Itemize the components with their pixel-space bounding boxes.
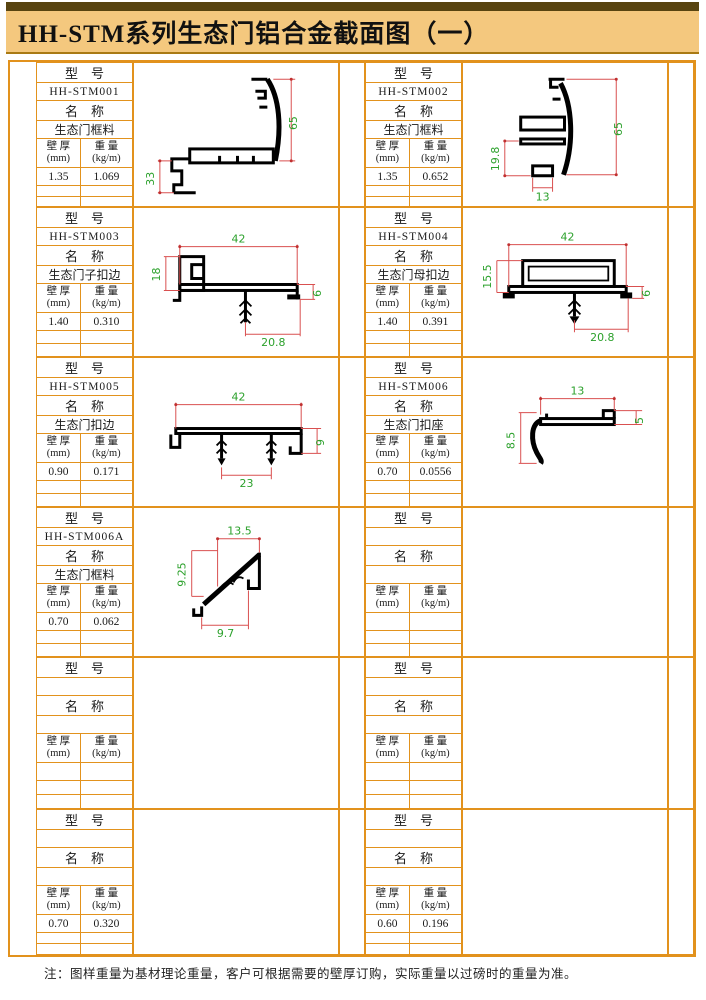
thickness-weight-header: 壁 厚(mm) 重 量(kg/m) bbox=[366, 284, 461, 313]
right-strip bbox=[668, 657, 694, 809]
spec-table-stm005: 型 号 HH-STM005 名 称 生态门扣边 壁 厚(mm) 重 量(kg/m… bbox=[36, 357, 133, 507]
thickness-weight-values: 1.40 0.391 bbox=[366, 313, 461, 331]
spec-table-bottom-left: 型 号 名 称 壁 厚(mm) 重 量(kg/m) 0.70 0.320 bbox=[36, 809, 133, 955]
spec-table-stm004: 型 号 HH-STM004 名 称 生态门母扣边 壁 厚(mm) 重 量(kg/… bbox=[365, 207, 462, 357]
right-strip bbox=[668, 207, 694, 357]
dim-label: 23 bbox=[239, 477, 253, 490]
thickness-value: 0.90 bbox=[37, 463, 80, 480]
spec-table-empty-2: 型 号 名 称 壁 厚(mm) 重 量(kg/m) bbox=[36, 657, 133, 809]
profile-drawing: 65 33 bbox=[134, 63, 338, 206]
thickness-weight-header: 壁 厚(mm) 重 量(kg/m) bbox=[366, 434, 461, 463]
model-value: HH-STM001 bbox=[37, 83, 132, 101]
empty-row bbox=[366, 781, 461, 795]
thickness-weight-header: 壁 厚(mm) 重 量(kg/m) bbox=[366, 584, 461, 613]
profile-shape bbox=[541, 419, 615, 425]
model-header: 型 号 bbox=[37, 810, 132, 830]
profile-diagram-stm004: 42 15.5 6 20.8 bbox=[462, 207, 668, 357]
title-bar: HH-STM系列生态门铝合金截面图（一） bbox=[6, 11, 699, 54]
empty-row bbox=[37, 481, 132, 494]
thickness-value bbox=[366, 763, 409, 780]
empty-row bbox=[366, 331, 461, 344]
weight-header: 重 量(kg/m) bbox=[409, 284, 461, 312]
thickness-header: 壁 厚(mm) bbox=[366, 734, 409, 762]
dim-label: 9.7 bbox=[217, 627, 234, 640]
weight-value: 0.320 bbox=[80, 915, 132, 932]
thickness-weight-values bbox=[37, 763, 132, 781]
weight-header: 重 量(kg/m) bbox=[409, 584, 461, 612]
thickness-value: 1.35 bbox=[366, 168, 409, 185]
left-margin-strip bbox=[10, 62, 36, 207]
thickness-weight-values: 0.90 0.171 bbox=[37, 463, 132, 481]
model-header: 型 号 bbox=[37, 208, 132, 228]
dim-label: 13 bbox=[570, 385, 584, 398]
dim-label: 6 bbox=[640, 290, 653, 297]
profile-diagram-stm001: 65 33 bbox=[133, 62, 339, 207]
name-header: 名 称 bbox=[366, 546, 461, 566]
footer-note: 注：图样重量为基材理论重量，客户可根据需要的壁厚订购，实际重量以过磅时的重量为准… bbox=[44, 963, 577, 982]
spec-table-stm006: 型 号 HH-STM006 名 称 生态门扣座 壁 厚(mm) 重 量(kg/m… bbox=[365, 357, 462, 507]
thickness-value: 0.70 bbox=[37, 613, 80, 630]
weight-value: 0.652 bbox=[409, 168, 461, 185]
model-header: 型 号 bbox=[37, 508, 132, 528]
empty-row bbox=[37, 344, 132, 356]
name-header: 名 称 bbox=[37, 101, 132, 121]
empty-row bbox=[366, 494, 461, 506]
thickness-weight-header: 壁 厚(mm) 重 量(kg/m) bbox=[366, 139, 461, 168]
empty-row bbox=[366, 944, 461, 954]
name-header: 名 称 bbox=[366, 246, 461, 266]
name-header: 名 称 bbox=[37, 396, 132, 416]
model-value bbox=[366, 678, 461, 696]
model-value: HH-STM003 bbox=[37, 228, 132, 246]
profile-diagram-stm005: 42 23 9 bbox=[133, 357, 339, 507]
thickness-header: 壁 厚(mm) bbox=[366, 284, 409, 312]
empty-row bbox=[366, 795, 461, 808]
weight-header: 重 量(kg/m) bbox=[80, 886, 132, 914]
profile-shape bbox=[204, 555, 260, 605]
profile-drawing: 42 15.5 6 20.8 bbox=[463, 208, 667, 356]
name-header: 名 称 bbox=[37, 246, 132, 266]
name-value bbox=[366, 716, 461, 734]
weight-header: 重 量(kg/m) bbox=[80, 584, 132, 612]
dim-label: 65 bbox=[287, 116, 300, 130]
right-strip bbox=[668, 357, 694, 507]
spec-table-bottom-right: 型 号 名 称 壁 厚(mm) 重 量(kg/m) 0.60 0.196 bbox=[365, 809, 462, 955]
dim-label: 42 bbox=[232, 233, 246, 246]
thickness-header: 壁 厚(mm) bbox=[366, 434, 409, 462]
thickness-weight-values: 1.35 1.069 bbox=[37, 168, 132, 186]
weight-value: 0.062 bbox=[80, 613, 132, 630]
weight-value: 1.069 bbox=[80, 168, 132, 185]
empty-row bbox=[37, 644, 132, 656]
thickness-weight-header: 壁 厚(mm) 重 量(kg/m) bbox=[37, 434, 132, 463]
dim-label: 13.5 bbox=[227, 525, 251, 538]
model-header: 型 号 bbox=[366, 658, 461, 678]
thickness-header: 壁 厚(mm) bbox=[366, 886, 409, 914]
thickness-weight-values: 0.70 0.062 bbox=[37, 613, 132, 631]
profile-diagram-empty bbox=[462, 507, 668, 657]
weight-header: 重 量(kg/m) bbox=[80, 139, 132, 167]
empty-row bbox=[37, 781, 132, 795]
dim-label: 42 bbox=[232, 391, 246, 404]
thickness-value bbox=[366, 613, 409, 630]
model-value: HH-STM005 bbox=[37, 378, 132, 396]
name-value: 生态门框料 bbox=[366, 121, 461, 139]
empty-row bbox=[37, 933, 132, 944]
empty-row bbox=[37, 331, 132, 344]
model-value bbox=[366, 830, 461, 848]
thickness-value: 0.70 bbox=[37, 915, 80, 932]
dim-label: 20.8 bbox=[261, 336, 285, 349]
empty-row bbox=[37, 494, 132, 506]
empty-row bbox=[366, 631, 461, 644]
middle-strip bbox=[339, 507, 365, 657]
name-header: 名 称 bbox=[366, 101, 461, 121]
model-header: 型 号 bbox=[37, 63, 132, 83]
thickness-value: 1.35 bbox=[37, 168, 80, 185]
model-value bbox=[366, 528, 461, 546]
empty-row bbox=[37, 944, 132, 954]
profile-diagram-empty bbox=[462, 657, 668, 809]
weight-value: 0.0556 bbox=[409, 463, 461, 480]
dim-label: 5 bbox=[633, 417, 646, 424]
model-header: 型 号 bbox=[37, 358, 132, 378]
thickness-weight-values: 0.70 0.0556 bbox=[366, 463, 461, 481]
spec-table-empty-1: 型 号 名 称 壁 厚(mm) 重 量(kg/m) bbox=[365, 507, 462, 657]
name-header: 名 称 bbox=[37, 546, 132, 566]
profile-diagram-stm002: 65 19.8 13 bbox=[462, 62, 668, 207]
model-value: HH-STM006 bbox=[366, 378, 461, 396]
thickness-value: 0.70 bbox=[366, 463, 409, 480]
thickness-weight-header: 壁 厚(mm) 重 量(kg/m) bbox=[366, 734, 461, 763]
name-value: 生态门扣座 bbox=[366, 416, 461, 434]
profile-drawing: 42 18 6 20.8 bbox=[134, 208, 338, 356]
middle-strip bbox=[339, 62, 365, 207]
left-margin-strip bbox=[10, 809, 36, 955]
name-header: 名 称 bbox=[366, 848, 461, 868]
model-header: 型 号 bbox=[366, 208, 461, 228]
thickness-header: 壁 厚(mm) bbox=[37, 434, 80, 462]
thickness-weight-values: 1.35 0.652 bbox=[366, 168, 461, 186]
dim-label: 9.25 bbox=[176, 562, 189, 586]
empty-row bbox=[37, 186, 132, 197]
dim-label: 6 bbox=[311, 290, 324, 297]
profile-diagram-stm006a: 13.5 9.25 9.7 bbox=[133, 507, 339, 657]
dim-label: 9 bbox=[314, 439, 327, 446]
model-header: 型 号 bbox=[366, 810, 461, 830]
thickness-weight-header: 壁 厚(mm) 重 量(kg/m) bbox=[366, 886, 461, 915]
right-strip bbox=[668, 507, 694, 657]
model-header: 型 号 bbox=[366, 358, 461, 378]
weight-header: 重 量(kg/m) bbox=[409, 886, 461, 914]
spec-table-stm003: 型 号 HH-STM003 名 称 生态门子扣边 壁 厚(mm) 重 量(kg/… bbox=[36, 207, 133, 357]
spec-table-stm006a: 型 号 HH-STM006A 名 称 生态门框料 壁 厚(mm) 重 量(kg/… bbox=[36, 507, 133, 657]
weight-value: 0.310 bbox=[80, 313, 132, 330]
weight-value: 0.171 bbox=[80, 463, 132, 480]
empty-row bbox=[366, 344, 461, 356]
dim-label: 20.8 bbox=[590, 331, 614, 344]
thickness-value bbox=[37, 763, 80, 780]
profile-drawing: 13.5 9.25 9.7 bbox=[134, 508, 338, 656]
dim-label: 33 bbox=[144, 172, 157, 186]
name-value bbox=[366, 566, 461, 584]
model-value: HH-STM002 bbox=[366, 83, 461, 101]
weight-header: 重 量(kg/m) bbox=[409, 734, 461, 762]
thickness-header: 壁 厚(mm) bbox=[37, 284, 80, 312]
thickness-weight-values: 0.70 0.320 bbox=[37, 915, 132, 933]
spec-table-stm002: 型 号 HH-STM002 名 称 生态门框料 壁 厚(mm) 重 量(kg/m… bbox=[365, 62, 462, 207]
name-value: 生态门框料 bbox=[37, 566, 132, 584]
dim-label: 8.5 bbox=[505, 432, 518, 449]
weight-header: 重 量(kg/m) bbox=[409, 139, 461, 167]
right-strip bbox=[668, 62, 694, 207]
catalog-table: 型 号 HH-STM001 名 称 生态门框料 壁 厚(mm) 重 量(kg/m… bbox=[8, 60, 696, 957]
profile-shape bbox=[176, 429, 301, 434]
empty-row bbox=[37, 197, 132, 207]
empty-row bbox=[366, 933, 461, 944]
thickness-weight-values bbox=[366, 613, 461, 631]
profile-diagram-stm006: 13 8.5 5 bbox=[462, 357, 668, 507]
thickness-header: 壁 厚(mm) bbox=[366, 584, 409, 612]
left-margin-strip bbox=[10, 657, 36, 809]
middle-strip bbox=[339, 809, 365, 955]
empty-row bbox=[366, 186, 461, 197]
name-header: 名 称 bbox=[37, 696, 132, 716]
thickness-weight-header: 壁 厚(mm) 重 量(kg/m) bbox=[37, 584, 132, 613]
left-margin-strip bbox=[10, 507, 36, 657]
name-value: 生态门母扣边 bbox=[366, 266, 461, 284]
thickness-weight-header: 壁 厚(mm) 重 量(kg/m) bbox=[37, 139, 132, 168]
model-header: 型 号 bbox=[366, 63, 461, 83]
dim-label: 15.5 bbox=[481, 264, 494, 288]
empty-row bbox=[37, 795, 132, 808]
dim-label: 13 bbox=[536, 191, 550, 204]
name-header: 名 称 bbox=[366, 396, 461, 416]
profile-drawing: 42 23 9 bbox=[134, 358, 338, 506]
thickness-value: 1.40 bbox=[37, 313, 80, 330]
dim-label: 18 bbox=[150, 268, 163, 282]
middle-strip bbox=[339, 657, 365, 809]
model-value bbox=[37, 830, 132, 848]
page-title: HH-STM系列生态门铝合金截面图（一） bbox=[6, 14, 489, 50]
dim-label: 42 bbox=[561, 231, 575, 244]
right-strip bbox=[668, 809, 694, 955]
left-margin-strip bbox=[10, 207, 36, 357]
name-value: 生态门扣边 bbox=[37, 416, 132, 434]
profile-diagram-empty bbox=[133, 809, 339, 955]
thickness-weight-values bbox=[366, 763, 461, 781]
weight-value: 0.391 bbox=[409, 313, 461, 330]
thickness-weight-values: 0.60 0.196 bbox=[366, 915, 461, 933]
name-value bbox=[37, 716, 132, 734]
thickness-header: 壁 厚(mm) bbox=[37, 139, 80, 167]
weight-header: 重 量(kg/m) bbox=[80, 284, 132, 312]
weight-value bbox=[409, 763, 461, 780]
profile-diagram-stm003: 42 18 6 20.8 bbox=[133, 207, 339, 357]
thickness-header: 壁 厚(mm) bbox=[37, 584, 80, 612]
weight-header: 重 量(kg/m) bbox=[80, 734, 132, 762]
name-value: 生态门框料 bbox=[37, 121, 132, 139]
middle-strip bbox=[339, 207, 365, 357]
name-value bbox=[37, 868, 132, 886]
empty-row bbox=[366, 644, 461, 656]
thickness-header: 壁 厚(mm) bbox=[37, 886, 80, 914]
weight-header: 重 量(kg/m) bbox=[80, 434, 132, 462]
thickness-header: 壁 厚(mm) bbox=[366, 139, 409, 167]
middle-strip bbox=[339, 357, 365, 507]
spec-table-stm001: 型 号 HH-STM001 名 称 生态门框料 壁 厚(mm) 重 量(kg/m… bbox=[36, 62, 133, 207]
profile-drawing: 13 8.5 5 bbox=[463, 358, 667, 506]
thickness-header: 壁 厚(mm) bbox=[37, 734, 80, 762]
thickness-weight-header: 壁 厚(mm) 重 量(kg/m) bbox=[37, 284, 132, 313]
top-dark-bar bbox=[6, 2, 699, 11]
weight-value bbox=[409, 613, 461, 630]
empty-row bbox=[366, 197, 461, 207]
thickness-value: 0.60 bbox=[366, 915, 409, 932]
thickness-weight-values: 1.40 0.310 bbox=[37, 313, 132, 331]
model-value: HH-STM004 bbox=[366, 228, 461, 246]
weight-value bbox=[80, 763, 132, 780]
model-value bbox=[37, 678, 132, 696]
weight-value: 0.196 bbox=[409, 915, 461, 932]
name-header: 名 称 bbox=[37, 848, 132, 868]
weight-header: 重 量(kg/m) bbox=[409, 434, 461, 462]
model-value: HH-STM006A bbox=[37, 528, 132, 546]
spec-table-empty-3: 型 号 名 称 壁 厚(mm) 重 量(kg/m) bbox=[365, 657, 462, 809]
model-header: 型 号 bbox=[37, 658, 132, 678]
profile-diagram-empty bbox=[462, 809, 668, 955]
empty-row bbox=[37, 631, 132, 644]
empty-row bbox=[366, 481, 461, 494]
profile-drawing: 65 19.8 13 bbox=[463, 63, 667, 206]
profile-diagram-empty bbox=[133, 657, 339, 809]
name-value: 生态门子扣边 bbox=[37, 266, 132, 284]
dim-label: 19.8 bbox=[489, 147, 502, 171]
thickness-weight-header: 壁 厚(mm) 重 量(kg/m) bbox=[37, 886, 132, 915]
thickness-weight-header: 壁 厚(mm) 重 量(kg/m) bbox=[37, 734, 132, 763]
name-value bbox=[366, 868, 461, 886]
name-header: 名 称 bbox=[366, 696, 461, 716]
left-margin-strip bbox=[10, 357, 36, 507]
dim-label: 65 bbox=[612, 122, 625, 136]
model-header: 型 号 bbox=[366, 508, 461, 528]
thickness-value: 1.40 bbox=[366, 313, 409, 330]
